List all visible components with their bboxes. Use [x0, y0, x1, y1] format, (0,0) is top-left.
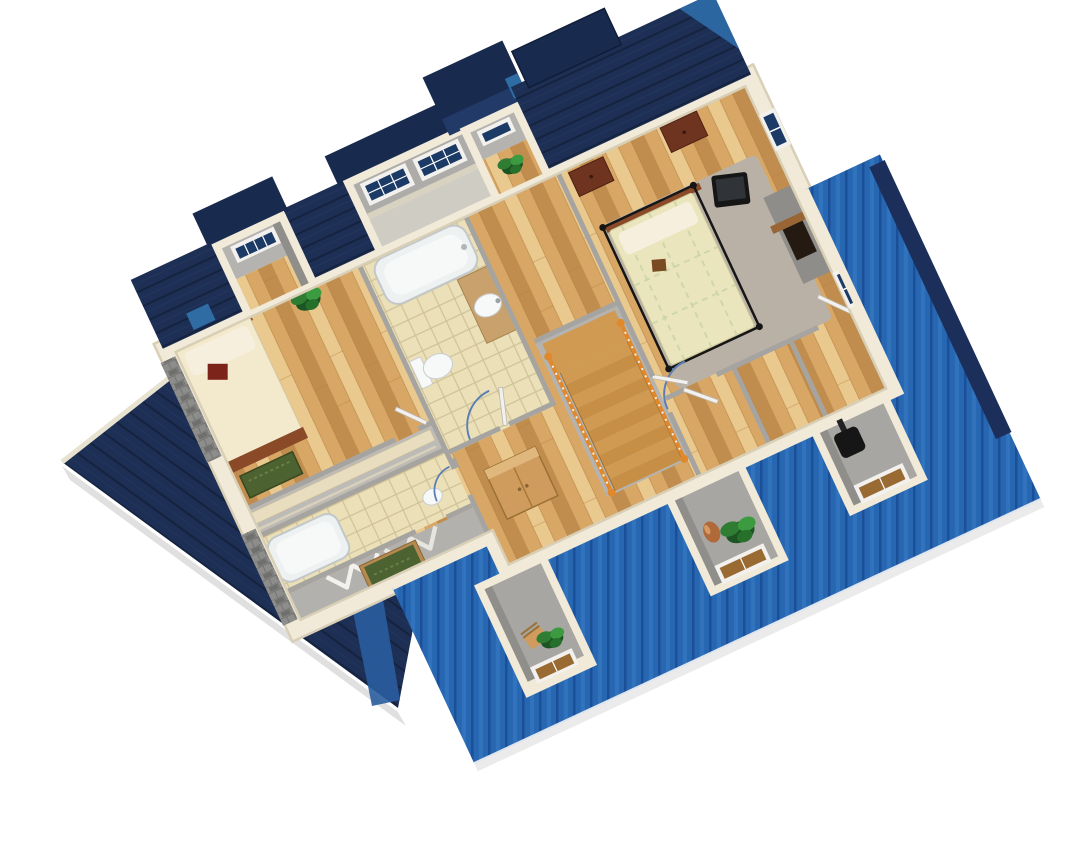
house-group — [98, 0, 1046, 820]
tv-set — [711, 172, 751, 208]
scene-svg — [0, 0, 1080, 864]
tv-screen — [716, 176, 746, 201]
red-cushion — [208, 364, 228, 380]
floor-plan-render — [0, 0, 1080, 864]
teddy-on-bed — [652, 259, 667, 272]
